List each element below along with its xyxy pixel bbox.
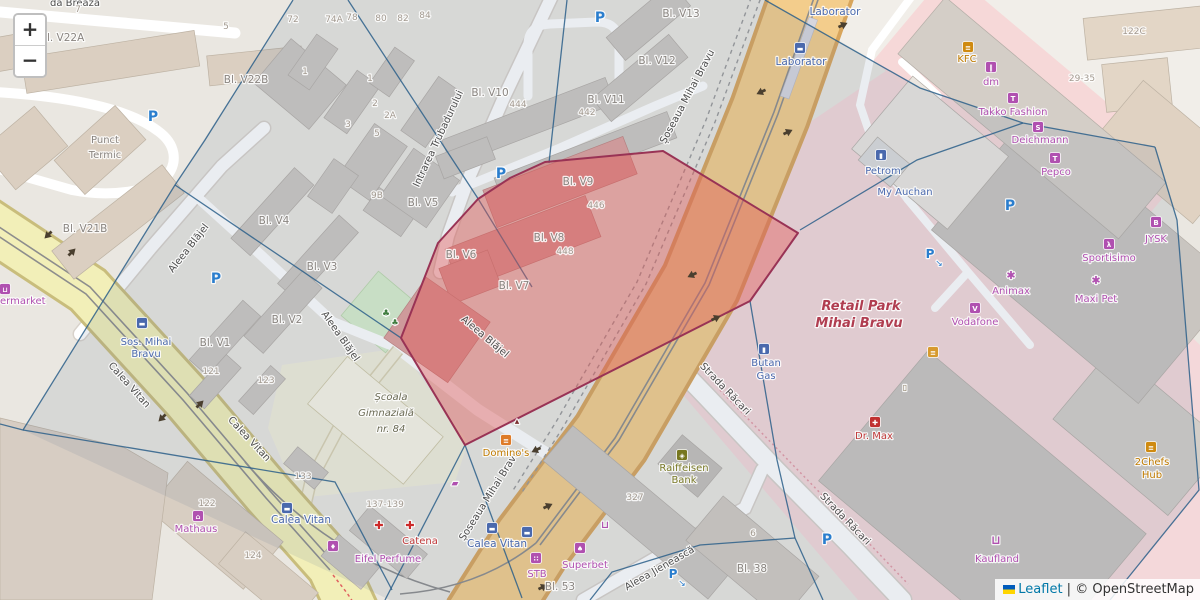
supermarket-icon: ⊔ (0, 284, 11, 295)
map-canvas[interactable]: PPPPPPP↘P↘▬▬▬▬▬▮▮✚✚✚‖TSTBλV♠∷⌂♦⊔✱✱⊔⊔▰≡≡≡… (0, 0, 1200, 600)
svg-text:♠: ♠ (577, 545, 583, 553)
poi-label: Eifel Perfume (355, 554, 421, 565)
svg-text:↘: ↘ (935, 259, 943, 269)
poi-label: dm (983, 77, 999, 88)
poi-label: Vodafone (952, 317, 999, 328)
house-number: 78 (346, 13, 358, 23)
parking-icon: P (211, 271, 221, 287)
svg-text:P: P (926, 247, 935, 261)
building-label: Bl. V3 (307, 261, 338, 273)
house-number: 137-139 (366, 500, 404, 510)
shoes-icon: S (1033, 122, 1044, 133)
waste-basket-icon: ▯ (903, 383, 907, 392)
poi-label: Takko Fashion (978, 107, 1048, 118)
building-label: Bl. V10 (471, 87, 508, 99)
doityourself-icon: ⌂ (193, 511, 204, 522)
poi-label: KFC (957, 54, 976, 65)
parking-icon: P (1005, 198, 1015, 214)
building-label: Bl. V2 (272, 314, 303, 326)
poi-label: ermarket (0, 296, 46, 307)
svg-text:▬: ▬ (139, 320, 146, 328)
poi-label: My Auchan (877, 187, 932, 198)
svg-text:▬: ▬ (797, 45, 804, 53)
tram-stop-icon: ▬ (282, 503, 293, 514)
school-label: nr. 84 (377, 424, 406, 435)
house-number: 74A (325, 15, 343, 25)
house-number: 444 (509, 100, 526, 110)
house-number: 133 (294, 472, 311, 482)
pharmacy-icon: ✚ (405, 519, 414, 532)
svg-text:∷: ∷ (534, 555, 539, 563)
poi-label: Sportisimo (1082, 253, 1135, 264)
svg-text:↘: ↘ (678, 579, 686, 589)
house-number: 122 (198, 499, 215, 509)
house-number: 5 (374, 129, 380, 139)
poi-label: 2Chefs (1135, 457, 1170, 468)
house-number: 442 (578, 108, 595, 118)
svg-text:▮: ▮ (762, 346, 766, 354)
transit-label: Sos. Mihai (121, 337, 172, 348)
transit-label: Calea Vitan (271, 514, 331, 526)
cart-icon: ⊔ (991, 533, 1001, 547)
attribution-bar: Leaflet | © OpenStreetMap (995, 579, 1200, 600)
parking-icon: P (496, 166, 506, 182)
poi-label: Gas (756, 371, 775, 382)
poi-label: Petrom (865, 166, 901, 177)
poi-label: Dr. Max (855, 431, 893, 442)
svg-text:▬: ▬ (284, 505, 291, 513)
poi-label: Raiffeisen (659, 463, 708, 474)
building-label: Bl. 53 (545, 581, 575, 593)
building-label: Bl. V12 (638, 55, 675, 67)
house-number: 448 (556, 247, 573, 257)
transit-authority-icon: ∷ (531, 553, 542, 564)
house-number: 122C (1122, 27, 1145, 37)
svg-text:T: T (1053, 155, 1058, 163)
svg-text:◈: ◈ (679, 452, 685, 460)
fast-food-icon: ≡ (928, 347, 939, 358)
house-number: 123 (257, 376, 274, 386)
house-number: 80 (375, 14, 387, 24)
zoom-control: + − (13, 13, 47, 78)
building-label: Termic (88, 150, 122, 161)
svg-text:✚: ✚ (374, 519, 383, 532)
house-number: 3 (345, 120, 351, 130)
building-label: Punct (91, 135, 119, 146)
svg-text:B: B (1153, 219, 1158, 227)
pizza-icon: ≡ (501, 435, 512, 446)
house-number: 82 (397, 14, 408, 24)
svg-text:▮: ▮ (879, 152, 883, 160)
svg-text:P: P (148, 109, 158, 125)
tree-icon: ♣ (382, 309, 390, 319)
attribution-separator: | (1063, 582, 1076, 597)
building-label: Bl. V1 (200, 337, 231, 349)
poi-label: STB (527, 569, 546, 580)
svg-text:P: P (1005, 198, 1015, 214)
svg-text:P: P (595, 10, 605, 26)
house-number: 7 (75, 5, 81, 15)
house-number: 72 (287, 15, 298, 25)
poi-label: JYSK (1144, 234, 1167, 245)
house-number: 9B (371, 191, 383, 201)
tram-stop-icon: ▬ (487, 523, 498, 534)
pharmacy-icon: ✚ (870, 417, 881, 428)
svg-text:P: P (822, 532, 832, 548)
building-label: Bl. V21B (63, 223, 108, 235)
tram-stop-icon: ▬ (795, 43, 806, 54)
house-number: 446 (587, 201, 604, 211)
house-number: 5 (223, 22, 229, 32)
house-number: 121 (202, 367, 219, 377)
parking-icon: P (595, 10, 605, 26)
svg-text:‖: ‖ (989, 64, 993, 73)
svg-text:S: S (1035, 124, 1040, 132)
school-label: Gimnazială (358, 408, 414, 419)
svg-text:≡: ≡ (930, 349, 936, 357)
poi-label: Bank (671, 475, 696, 486)
pharmacy-icon: ✚ (374, 519, 383, 532)
parking-entrance-icon: P (926, 247, 935, 261)
bus-stop-icon: ▬ (522, 527, 533, 538)
school-label: Școala (375, 392, 408, 403)
area-label: Mihai Bravu (815, 316, 902, 331)
poi-label: Animax (992, 286, 1030, 297)
svg-text:♣: ♣ (391, 318, 398, 327)
tree-icon: ♣ (391, 318, 398, 327)
parking-icon: P (148, 109, 158, 125)
svg-text:⊔: ⊔ (991, 533, 1001, 547)
poi-label: Maxi Pet (1075, 294, 1117, 305)
house-number: 1 (302, 67, 308, 77)
fast-food-icon: ≡ (1146, 442, 1157, 453)
phone-icon: V (970, 303, 981, 314)
svg-text:♣: ♣ (382, 309, 390, 319)
chemist-icon: ‖ (986, 62, 997, 73)
fuel-icon: ▮ (759, 344, 770, 355)
zoom-in-button[interactable]: + (15, 15, 45, 45)
poi-label: Mathaus (175, 524, 218, 535)
svg-text:▴: ▴ (515, 417, 520, 427)
house-number: 2A (384, 111, 397, 121)
leaflet-link[interactable]: Leaflet (1018, 582, 1062, 597)
bank-icon: ◈ (677, 450, 688, 461)
svg-text:▰: ▰ (452, 479, 459, 489)
house-number: 124 (244, 551, 261, 561)
paw-icon: ✱ (1006, 269, 1015, 282)
clothes-icon: T (1050, 153, 1061, 164)
svg-text:♦: ♦ (330, 543, 336, 551)
building-label: Bl. 38 (737, 563, 767, 575)
house-number: 2 (372, 99, 378, 109)
building-label: Bl. V22B (224, 74, 269, 86)
house-number: 6 (750, 529, 756, 539)
svg-text:≡: ≡ (503, 437, 509, 445)
building-label: Bl. V11 (587, 94, 624, 106)
svg-text:▯: ▯ (903, 383, 907, 392)
monument-icon: ▴ (515, 417, 520, 427)
svg-text:⌂: ⌂ (195, 513, 200, 521)
house-number: 29-35 (1069, 74, 1095, 84)
bus-stop-icon: ▬ (137, 318, 148, 329)
poi-label: Pepco (1041, 167, 1071, 178)
svg-text:✱: ✱ (1006, 269, 1015, 282)
building-label: Bl. V5 (408, 197, 439, 209)
svg-text:T: T (1011, 95, 1016, 103)
arrow-icon: ↘ (678, 579, 686, 589)
svg-text:⊔: ⊔ (601, 520, 609, 531)
poi-label: Domino's (483, 448, 530, 459)
poi-label: Butan (751, 358, 781, 369)
svg-text:≡: ≡ (1148, 444, 1154, 452)
building-label: Bl. V4 (259, 215, 290, 227)
house-number: 327 (626, 493, 643, 503)
fast-food-icon: ≡ (963, 42, 974, 53)
svg-text:✚: ✚ (405, 519, 414, 532)
area-label: Retail Park (821, 299, 901, 314)
transit-label: Laborator (810, 6, 862, 18)
transit-label: Calea Vitan (467, 538, 527, 550)
bag-icon: ▰ (452, 479, 459, 489)
svg-text:▬: ▬ (524, 529, 531, 537)
building-label: Bl. V7 (499, 280, 530, 292)
house-number: 84 (419, 11, 431, 21)
svg-text:✱: ✱ (1091, 274, 1100, 287)
sports-icon: λ (1104, 239, 1115, 250)
poi-label: Hub (1142, 470, 1162, 481)
building-label: Bl. V8 (534, 232, 565, 244)
svg-text:V: V (972, 305, 978, 313)
poi-label: Deichmann (1011, 135, 1068, 146)
bed-icon: B (1151, 217, 1162, 228)
perfume-icon: ♦ (328, 541, 339, 552)
svg-text:λ: λ (1107, 241, 1112, 249)
svg-text:≡: ≡ (965, 44, 971, 52)
building-label: Bl. V6 (446, 249, 477, 261)
svg-text:P: P (496, 166, 506, 182)
svg-text:▬: ▬ (489, 525, 496, 533)
building-label: Bl. V13 (662, 8, 699, 20)
building-label: Bl. V9 (563, 176, 594, 188)
betting-icon: ♠ (575, 543, 586, 554)
transit-label: Laborator (776, 56, 828, 68)
fuel-icon: ▮ (876, 150, 887, 161)
svg-text:⊔: ⊔ (2, 286, 8, 294)
poi-label: Catena (402, 536, 438, 547)
poi-label: Kaufland (975, 554, 1019, 565)
osm-link[interactable]: © OpenStreetMap (1075, 582, 1194, 597)
clothes-icon: T (1008, 93, 1019, 104)
paw-icon: ✱ (1091, 274, 1100, 287)
map-container[interactable]: PPPPPPP↘P↘▬▬▬▬▬▮▮✚✚✚‖TSTBλV♠∷⌂♦⊔✱✱⊔⊔▰≡≡≡… (0, 0, 1200, 600)
house-number: 1 (367, 74, 373, 84)
basket-icon: ⊔ (601, 520, 609, 531)
svg-text:P: P (211, 271, 221, 287)
ukraine-flag-icon (1003, 585, 1015, 594)
poi-label: Superbet (562, 560, 608, 571)
arrow-icon: ↘ (935, 259, 943, 269)
zoom-out-button[interactable]: − (15, 45, 45, 76)
parking-icon: P (822, 532, 832, 548)
transit-label: Bravu (131, 349, 160, 360)
svg-text:✚: ✚ (872, 419, 878, 427)
